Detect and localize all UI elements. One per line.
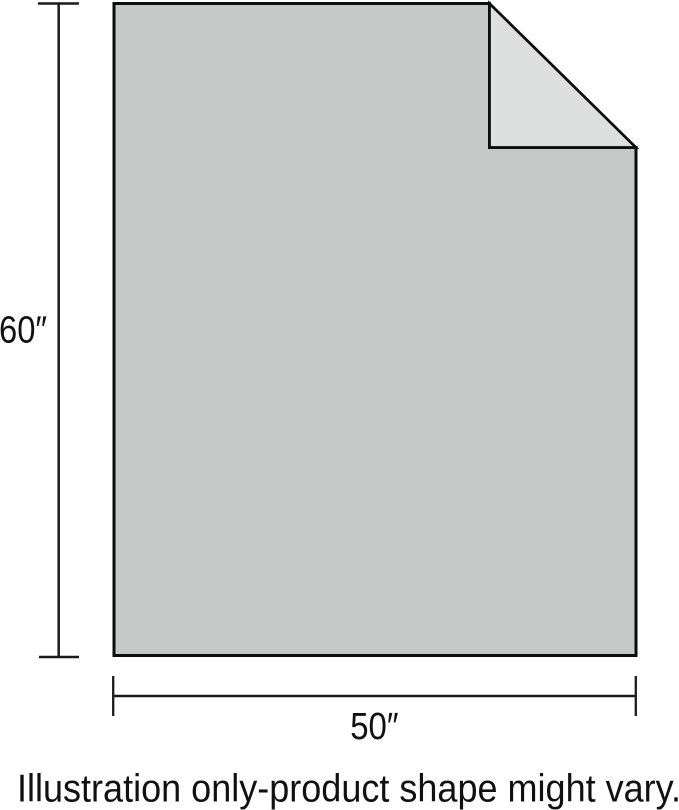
svg-text:Illustration only-product shap: Illustration only-product shape might va…	[17, 768, 679, 810]
svg-text:60″: 60″	[0, 310, 47, 352]
svg-text:50″: 50″	[350, 706, 398, 748]
